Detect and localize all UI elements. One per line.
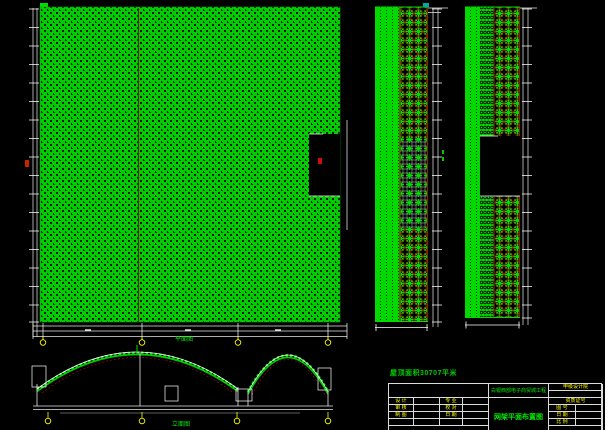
title-block: 屋顶面积30707平米 白银西部电子商贸城工程 甲级设计院 设 计 专 业 审 … <box>388 368 604 430</box>
title-block-table: 白银西部电子商贸城工程 甲级设计院 设 计 专 业 审 核 校 对 制 图 日 … <box>388 383 602 430</box>
titleblock-blank-cell <box>549 391 603 398</box>
checker-value <box>414 405 440 412</box>
right-strip-dim-lines <box>523 8 528 325</box>
date-label: 日 期 <box>549 412 576 419</box>
middle-strip-dim-ticks <box>432 9 442 322</box>
designer-value <box>414 398 440 405</box>
discipline-label: 专 业 <box>440 398 463 405</box>
plan-view-label: 平面图 <box>175 336 193 343</box>
date-col-label: 日 期 <box>440 412 463 419</box>
middle-strip-dim-lines <box>433 8 438 327</box>
cutout-red-mark <box>318 158 322 164</box>
plan-view: 平面图 <box>25 3 347 345</box>
titleblock-empty-header <box>389 384 489 398</box>
left-dimension-lines <box>33 8 37 337</box>
discipline-value <box>463 398 489 405</box>
titleblock-blank-cell <box>389 419 414 426</box>
bottom-dimension-lines <box>33 326 347 337</box>
designer-label: 设 计 <box>389 398 414 405</box>
middle-strip-section <box>375 3 448 331</box>
drawing-canvas: 平面图 <box>0 0 605 430</box>
figure-no-value <box>576 405 603 412</box>
proofer-label: 校 对 <box>440 405 463 412</box>
area-note: 屋顶面积30707平米 <box>390 368 457 378</box>
titleblock-blank-cell <box>463 419 489 426</box>
drawing-title: 网架平面布置图 <box>489 398 549 430</box>
elevation-view-label: 立面图 <box>172 420 190 428</box>
cad-sheet: 平面图 <box>0 0 605 430</box>
elevation-support-boxes <box>32 366 331 401</box>
date-col-value <box>463 412 489 419</box>
small-arch-bottom-chord <box>248 358 328 395</box>
left-dimension-ticks <box>29 9 39 322</box>
scale-label: 比 例 <box>549 419 576 426</box>
left-red-mark <box>25 160 29 167</box>
small-arch-top-chord <box>248 355 328 392</box>
proofer-value <box>463 405 489 412</box>
teal-mark <box>423 3 429 7</box>
plan-cutout <box>309 134 340 196</box>
plan-mesh-area <box>40 7 340 322</box>
right-strip-section <box>465 7 537 329</box>
big-arch-bottom-chord <box>37 355 238 392</box>
design-institute: 甲级设计院 <box>549 384 603 391</box>
middle-strip-bottom-bracket <box>375 324 428 331</box>
drafter-value <box>414 412 440 419</box>
right-strip-green-band <box>465 7 480 318</box>
date-value <box>576 412 603 419</box>
right-strip-dim-ticks <box>522 9 532 318</box>
titleblock-blank-cell <box>549 426 603 430</box>
scale-value <box>576 419 603 426</box>
titleblock-blank-cell <box>389 426 489 430</box>
middle-strip-green-band <box>375 7 400 322</box>
drafter-label: 制 图 <box>389 412 414 419</box>
big-arch-red-dashed <box>42 358 234 394</box>
titleblock-blank-cell <box>414 419 440 426</box>
figure-no-label: 图 号 <box>549 405 576 412</box>
middle-strip-skylight-zone <box>400 138 428 228</box>
elevation-ground-lines <box>33 406 333 410</box>
big-arch-top-chord <box>37 352 238 389</box>
right-strip-bottom-bracket <box>465 322 520 329</box>
project-name: 白银西部电子商贸城工程 <box>489 384 549 398</box>
small-arch-red-dashed <box>252 360 325 396</box>
big-arch-web <box>37 353 238 390</box>
right-strip-cutout <box>480 136 520 196</box>
elevation-view: 立面图 <box>32 345 333 428</box>
cert-no-label: 资质证号 <box>549 398 603 405</box>
titleblock-blank-cell <box>440 419 463 426</box>
checker-label: 审 核 <box>389 405 414 412</box>
